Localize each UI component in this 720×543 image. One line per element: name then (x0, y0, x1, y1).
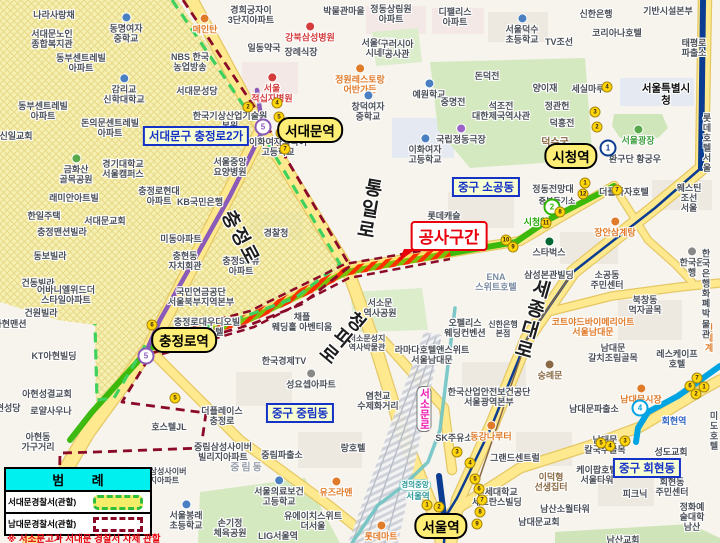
map-label: 아현성결교회 (22, 389, 72, 399)
map-label: 기반시설본부 (643, 6, 693, 16)
map-label: 회현동 주민센터 (655, 477, 688, 497)
map-label: 일동약국 (247, 43, 280, 53)
map-label: 서울덕수 초등학교 (505, 13, 538, 44)
map-label: 강북삼성병원 (285, 21, 335, 42)
map-label: 정동상림원 아파트 (370, 4, 411, 24)
district-label: 중구 소공동 (452, 177, 520, 197)
station-callout: 충정로역 (151, 327, 217, 353)
map-label: 신한은행 본점 (488, 321, 517, 339)
map-label: 중명전 (441, 97, 466, 107)
exit-number: 8 (475, 507, 486, 518)
exit-number: 5 (596, 438, 607, 449)
road-name-label: 충정로 (218, 208, 262, 269)
exit-number: 2 (434, 502, 445, 513)
map-label: 스타벅스 (532, 236, 565, 257)
map-label: 어바니엘위드더 스타일아파트 (37, 285, 95, 305)
map-label: 롯데호텔 서울 (701, 113, 714, 173)
exit-number: 9 (472, 519, 483, 530)
station-callout: 시청역 (544, 143, 597, 169)
map-label: 미도호텔 (710, 411, 718, 451)
map-label: TV조선 (545, 37, 573, 47)
map-label: 동강나루터 (470, 420, 511, 441)
legend-note: ※ 서소문고가 서대문 경찰서 자체 관할 (7, 531, 161, 543)
map-label: 석조전 대한제국역사관 (472, 101, 530, 121)
map-label: 유즈라멘 (319, 476, 352, 497)
map-label: 태평로파출소 (681, 38, 707, 58)
map-label: 덕홍전 (550, 118, 575, 128)
map-label: 한국은행 (678, 246, 706, 277)
map-label: 아현맨션 (0, 319, 27, 329)
map-label: 손기정 체육공원 (213, 518, 246, 538)
map-label: 금화산 골목공원 (59, 153, 92, 184)
map-label: 정화예술대학 남산 (678, 502, 706, 532)
map-label: 이덕형 선생집터 (534, 472, 567, 492)
map-label: 돈덕전 (475, 71, 500, 81)
map-label: 남산소월타워 (540, 504, 590, 514)
station-callout: 서대문역 (277, 117, 343, 143)
map-label: 케이팝호텔 서울타워 (576, 465, 617, 485)
exit-number: 3 (590, 107, 601, 118)
exit-number: 4 (272, 98, 283, 109)
map-label: 정동전망대 (532, 184, 573, 194)
map-label: 숭례문 (538, 359, 563, 380)
map-label: 호스텔JL (151, 422, 186, 432)
map-label: 경찰청 (264, 228, 289, 238)
map-label: 염천교 수제화거리 (357, 391, 398, 411)
exit-number: 12 (578, 189, 589, 200)
map-label: 동부센트레빌 아파트 (18, 101, 68, 121)
exit-number: 1 (580, 178, 591, 189)
map-label: 남산교회 (606, 535, 639, 543)
map-label: 구러시아 공사관 (380, 39, 413, 59)
map-label: 경기대학교 서울캠퍼스 (102, 159, 143, 179)
map-label: 동명여자 중학교 (109, 12, 142, 43)
subway-line-roundel: 5 (255, 119, 272, 136)
map-label: 경희궁자이 3단지아파트 (228, 5, 274, 25)
map-label: 웨스틴조선 서울 (674, 183, 705, 213)
exit-number: 4 (465, 458, 476, 469)
map-label: LIG서울역 (258, 531, 298, 541)
district-label: 중구 회현동 (613, 458, 681, 478)
map-label: 박물관마을 (323, 6, 364, 16)
map-label: 동보빌라 (33, 251, 66, 261)
seodaemun-jurisdiction-swatch (93, 495, 143, 510)
map-label: 회현역 (662, 416, 687, 426)
map-label: 서울의료보건 고등학교 (254, 475, 304, 506)
map-label: 더플라자호텔 (599, 187, 649, 197)
map-label: 랑호텔 (341, 443, 366, 453)
construction-callout: 공사구간 (411, 221, 488, 251)
map-label: 래미안아트빌 (49, 193, 99, 203)
map-label: 코리아나호텔 (592, 28, 642, 38)
map-label: 정원레스토랑 어반가든 (335, 63, 385, 94)
map-label: 충정SK뷰 아파트 (222, 256, 259, 276)
exit-number: 2 (691, 389, 702, 400)
namdaemun-jurisdiction-swatch (93, 517, 143, 532)
exit-number: 3 (620, 436, 631, 447)
map-label: 충정로현대 아파트 (138, 186, 179, 206)
subway-line-roundel: 5 (138, 348, 155, 365)
exit-number: 4 (602, 82, 613, 93)
map-label: 서울특별시청 (639, 83, 693, 107)
map-label: 메인탄 (193, 13, 218, 34)
map-label: 이화여자 고등학교 (408, 133, 441, 164)
district-label: 서대문구 충정로2가 (143, 126, 249, 146)
map-label: 서울광장 (621, 124, 654, 145)
map-label: 성도교회 (654, 447, 687, 457)
exit-number: 8 (555, 207, 566, 218)
map-label: 한국산업안전보건공단 서울광역본부 (448, 387, 531, 407)
subway-line-roundel: 4 (632, 400, 649, 417)
map-label: 신세계 (704, 323, 715, 353)
map-label: 세실마루 (571, 84, 604, 94)
map-label: 코트야드바이메리어트 서울남대문 (552, 317, 635, 337)
map-label: 신한은행 (579, 9, 612, 19)
map-label: 중림동 (230, 462, 264, 473)
legend-rows: 서대문경찰서(관할)남대문경찰서(관할) (6, 490, 150, 534)
map-label: 동부센트레빌 아파트 (56, 53, 106, 73)
map-label: 건동빌라 (21, 278, 54, 288)
map-label: 나라사랑채 (33, 10, 74, 20)
map-label: 중림파출소 (261, 450, 302, 460)
exit-number: 7 (477, 495, 488, 506)
map-label: 북창동 먹자골목 (628, 295, 661, 315)
map-label: 양이재 (533, 83, 558, 93)
map-label: 남대문 갈치조림골목 (588, 343, 638, 363)
map-label: 중림삼성사이버 빌리지아파트 (194, 442, 252, 462)
map-label: 예원학교 (412, 78, 445, 99)
map-label: 남대문교회 (518, 517, 559, 527)
map-label: 채플 웨딩홀 아벤티움 (272, 312, 332, 332)
map-label: 신일교회 (0, 131, 33, 141)
map-label: 서소문성지 역사박물관 (349, 335, 386, 353)
map-label: 서울봉래 초등학교 (169, 499, 202, 530)
map-label: 한국은행 화폐박물관 (699, 249, 713, 340)
map-label: 감리교 신학대학교 (103, 73, 144, 104)
map-label: 소공동 주민센터 (590, 270, 623, 290)
map-label: 더플레이스 충정로 (201, 406, 242, 426)
map-label: 유에이치스위트 더서울 (284, 511, 342, 531)
map-label: 한일주택 (27, 211, 60, 221)
map-label: 약현성당 (0, 403, 21, 413)
exit-number: 2 (592, 122, 603, 133)
station-callout: 서울역 (414, 513, 467, 539)
map-label: NBS 한국 농업방송 (171, 52, 209, 72)
map-label: 환구단 황궁우 (609, 154, 661, 164)
exit-number: 7 (280, 144, 291, 155)
map-label: 정관헌 (545, 101, 570, 111)
map-label: 서대문노인 종합복지관 (31, 29, 72, 49)
map-label: ENA 스위트호텔 (475, 272, 516, 292)
map-canvas[interactable]: 나라사랑채동명여자 중학교서대문노인 종합복지관동부센트레빌 아파트NBS 한국… (0, 0, 720, 543)
map-label: 디팰리스 아파트 (438, 7, 471, 27)
road-name-label: 통일로 (353, 176, 383, 241)
road-name-label: 세종대로 (510, 276, 551, 362)
map-label: 돈의문센트레빌 아파트 (81, 118, 139, 138)
map-label: 서소문로 (416, 386, 431, 432)
subway-line-roundel: 1 (600, 140, 617, 157)
map-label: 충현동 자치회관 (168, 251, 201, 271)
map-label: SK주유소 (435, 433, 472, 443)
map-label: 서대문교회 (84, 216, 125, 226)
map-label: 건원빌라 (24, 308, 57, 318)
map-label: 성요셉아파트 (286, 368, 336, 389)
legend-row: 서대문경찰서(관할) (6, 490, 150, 512)
map-label: 아현동 가구거리 (21, 432, 54, 452)
exit-number: 9 (508, 242, 519, 253)
map-label: 한국경제TV (262, 356, 307, 366)
map-label: 서소문 역사공원 (363, 298, 396, 318)
map-label: 창덕여자 중학교 (351, 90, 384, 121)
map-label: KB국민은행 (177, 197, 223, 207)
map-label: 피크닉 (623, 489, 648, 499)
map-label: 서울아트 시네마 (361, 38, 394, 58)
exit-number: 2 (243, 102, 254, 113)
map-label: KT아현빌딩 (31, 351, 76, 361)
map-label: 장례식장 (284, 47, 317, 57)
map-label: 라마다호텔앤스위트 서울남대문 (395, 345, 470, 365)
map-label: 경의중앙 (399, 479, 431, 491)
exit-number: 5 (170, 393, 181, 404)
map-label: 그랜드센트럴 (490, 453, 540, 463)
map-label: 레스케이프호텔 (656, 349, 699, 369)
map-label: 롯데마트 (364, 520, 397, 541)
exit-number: 3 (452, 447, 463, 458)
map-label: 서대문성당 (176, 86, 217, 96)
exit-number: 11 (541, 218, 552, 229)
map-label: 국민연금공단 서울북부지역본부 (168, 287, 234, 307)
exit-number: 1 (422, 500, 433, 511)
road-name-label: 청파로 (313, 307, 368, 367)
exit-number: 6 (474, 484, 485, 495)
map-label: 로얄사우나 (30, 406, 71, 416)
map-label: 장안삼계탕 (594, 216, 635, 237)
legend-title: 범 례 (6, 469, 150, 490)
map-label: 미동아파트 (160, 234, 201, 244)
district-label: 중구 중림동 (266, 403, 334, 423)
map-label: 삼성본관빌딩 (524, 270, 574, 280)
map-label: 국립정동극장 (436, 123, 486, 144)
exit-number: 7 (612, 185, 623, 196)
map-label: 서울중앙 요양병원 (213, 157, 246, 177)
map-label: 남대문파출소 (569, 404, 619, 414)
map-labels-layer: 나라사랑채동명여자 중학교서대문노인 종합복지관동부센트레빌 아파트NBS 한국… (0, 0, 720, 543)
legend: 범 례 서대문경찰서(관할)남대문경찰서(관할) (4, 467, 152, 536)
map-label: 오펠리스 웨딩컨벤션 (444, 318, 485, 338)
map-label: 충정맨션빌라 (37, 227, 87, 237)
